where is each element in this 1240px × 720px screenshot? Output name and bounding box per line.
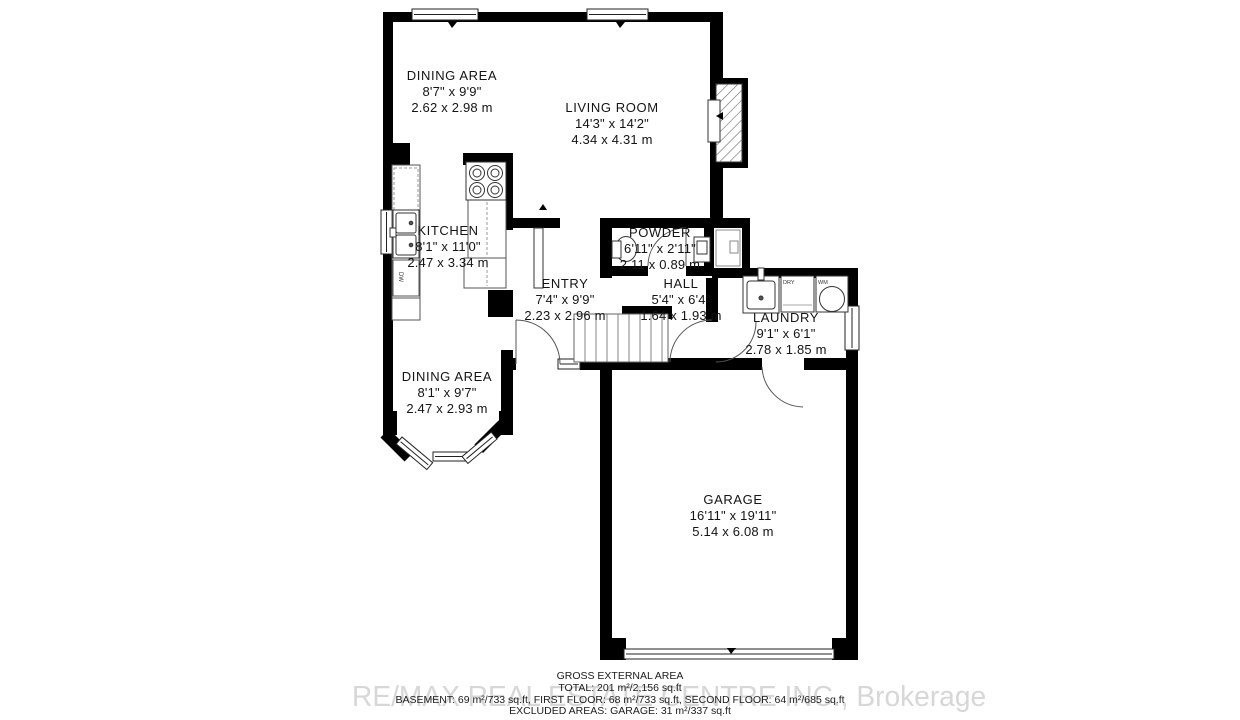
bay-window-icon [462, 432, 497, 463]
floorplan-page: DW DRY WM [0, 0, 1240, 720]
washer-label: WM [818, 280, 828, 286]
room-dims-imperial: 8'7" x 9'9" [407, 84, 497, 100]
area-summary-excluded: EXCLUDED AREAS: GARAGE: 31 m²/337 sq.ft [320, 706, 920, 718]
room-dims-metric: 2.62 x 2.98 m [407, 100, 497, 116]
room-dims-metric: 2.47 x 3.34 m [407, 255, 488, 271]
room-dims-imperial: 7'4" x 9'9" [524, 292, 605, 308]
hall-closet-icon [716, 230, 740, 266]
front-door-arc [516, 320, 560, 364]
room-name: ENTRY [524, 276, 605, 292]
room-label-living-room: LIVING ROOM 14'3" x 14'2" 4.34 x 4.31 m [565, 100, 658, 148]
room-name: DINING AREA [407, 68, 497, 84]
room-label-entry: ENTRY 7'4" x 9'9" 2.23 x 2.96 m [524, 276, 605, 324]
stove-icon [466, 162, 506, 200]
dryer-label: DRY [783, 280, 795, 286]
area-summary-total: TOTAL: 201 m²/2,156 sq.ft [320, 683, 920, 695]
room-label-garage: GARAGE 16'11" x 19'11" 5.14 x 6.08 m [690, 492, 777, 540]
dryer-icon: DRY [781, 276, 814, 312]
garage-entry-door-arc [762, 367, 803, 407]
room-dims-metric: 2.47 x 2.93 m [402, 401, 492, 417]
room-dims-metric: 2.23 x 2.96 m [524, 308, 605, 324]
room-label-dining-area-lower: DINING AREA 8'1" x 9'7" 2.47 x 2.93 m [402, 369, 492, 417]
washer-icon: WM [816, 276, 848, 312]
room-dims-metric: 4.34 x 4.31 m [565, 132, 658, 148]
hall-door-arc [670, 320, 712, 362]
room-label-dining-area-top: DINING AREA 8'7" x 9'9" 2.62 x 2.98 m [407, 68, 497, 116]
room-dims-metric: 2.11 x 0.89 m [620, 257, 700, 273]
room-name: GARAGE [690, 492, 777, 508]
dishwasher-label: DW [397, 272, 403, 282]
room-dims-metric: 5.14 x 6.08 m [690, 524, 777, 540]
measurement-markers [383, 22, 736, 654]
room-name: DINING AREA [402, 369, 492, 385]
room-name: LIVING ROOM [565, 100, 658, 116]
room-dims-metric: 1.64 x 1.93 m [640, 308, 721, 324]
room-label-kitchen: KITCHEN 8'1" x 11'0" 2.47 x 3.34 m [407, 223, 488, 271]
room-dims-imperial: 9'1" x 6'1" [745, 326, 826, 342]
area-summary: GROSS EXTERNAL AREA TOTAL: 201 m²/2,156 … [320, 671, 920, 718]
room-dims-metric: 2.78 x 1.85 m [745, 342, 826, 358]
room-dims-imperial: 6'11" x 2'11" [620, 241, 700, 257]
room-dims-imperial: 8'1" x 11'0" [407, 239, 488, 255]
room-name: LAUNDRY [745, 310, 826, 326]
room-name: KITCHEN [407, 223, 488, 239]
room-label-laundry: LAUNDRY 9'1" x 6'1" 2.78 x 1.85 m [745, 310, 826, 358]
room-name: HALL [640, 276, 721, 292]
room-label-powder: POWDER 6'11" x 2'11" 2.11 x 0.89 m [620, 225, 700, 273]
room-label-hall: HALL 5'4" x 6'4" 1.64 x 1.93 m [640, 276, 721, 324]
room-dims-imperial: 8'1" x 9'7" [402, 385, 492, 401]
room-name: POWDER [620, 225, 700, 241]
room-dims-imperial: 5'4" x 6'4" [640, 292, 721, 308]
room-dims-imperial: 14'3" x 14'2" [565, 116, 658, 132]
room-dims-imperial: 16'11" x 19'11" [690, 508, 777, 524]
